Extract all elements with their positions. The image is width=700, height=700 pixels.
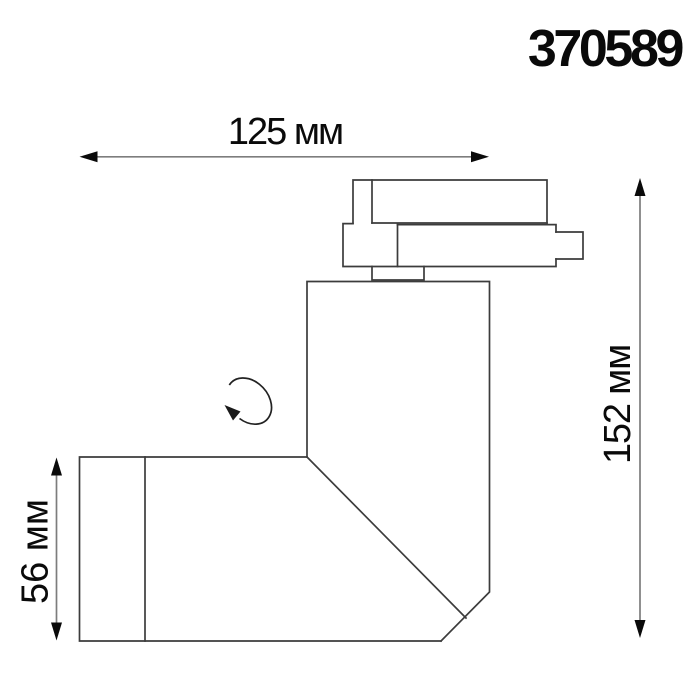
svg-text:370589: 370589 xyxy=(528,20,683,78)
svg-text:125 мм: 125 мм xyxy=(228,111,342,153)
svg-text:56 мм: 56 мм xyxy=(15,499,57,604)
svg-text:152 мм: 152 мм xyxy=(597,345,639,464)
